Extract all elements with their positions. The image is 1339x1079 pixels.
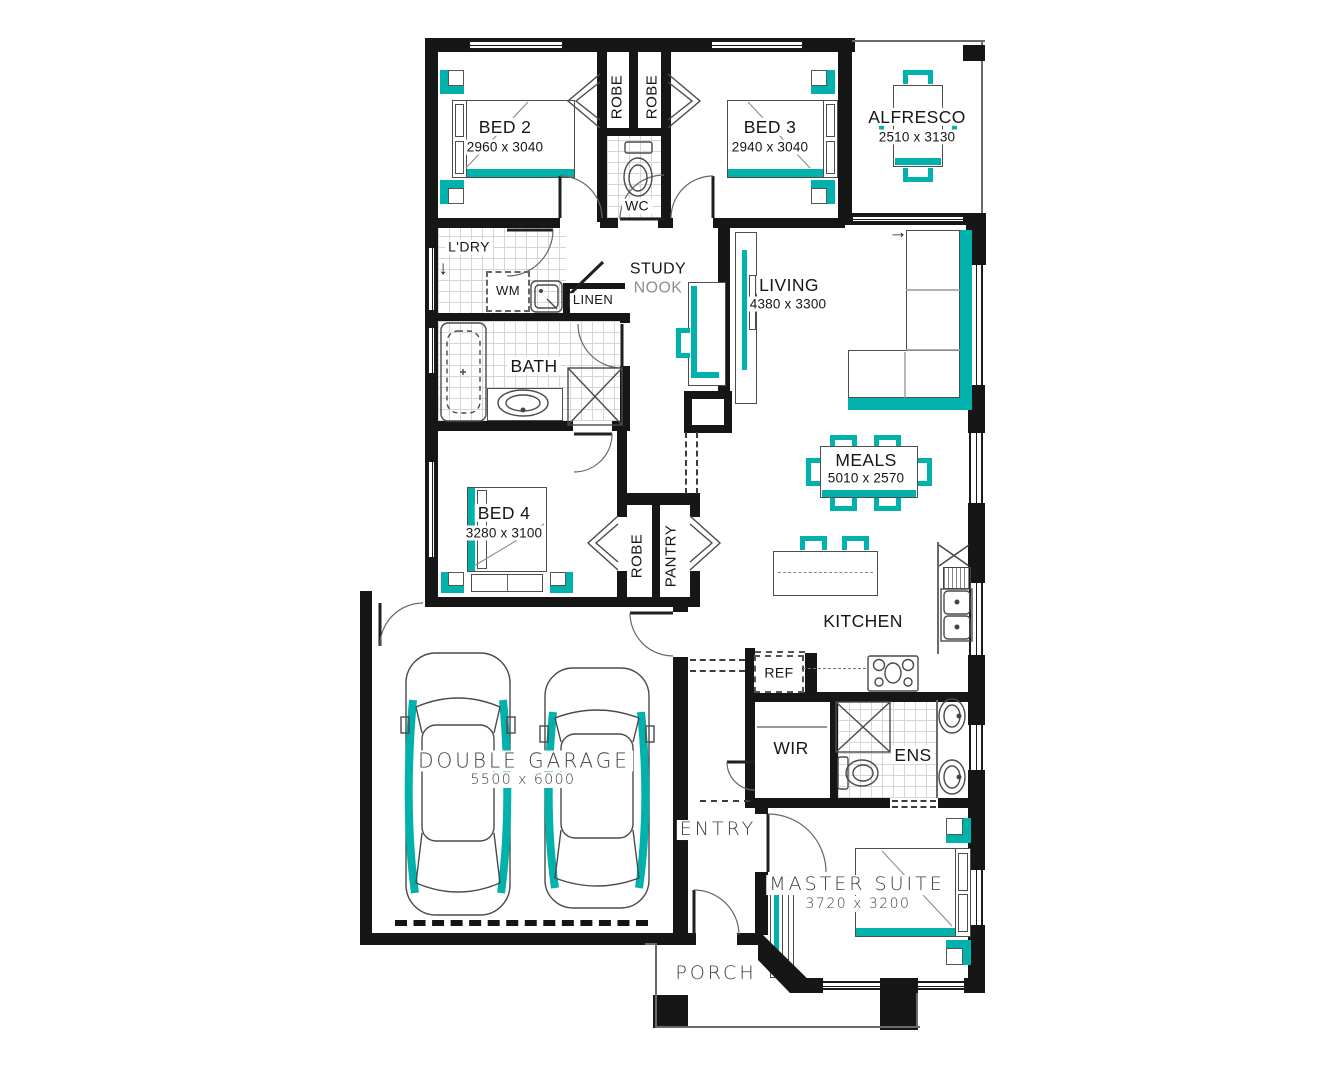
bed3-label: BED 3 (741, 118, 800, 136)
robe-bed2-label: ROBE (609, 73, 626, 122)
ens-toilet (838, 757, 878, 789)
meals-label: MEALS (832, 451, 899, 469)
laundry-label: L'DRY (445, 240, 493, 255)
bed4-dims: 3280 x 3100 (464, 526, 545, 541)
cooktop (868, 656, 918, 691)
wc-toilet (624, 142, 652, 196)
robe-bed4-label: ROBE (629, 532, 646, 581)
door-bed4 (574, 434, 612, 472)
bath-basin (498, 390, 548, 416)
garage-dims: 5500 x 6000 (469, 772, 578, 788)
wc-label: WC (622, 199, 652, 214)
master-dims: 3720 x 3200 (804, 896, 913, 912)
bed2-label: BED 2 (476, 118, 535, 136)
door-bath (578, 324, 622, 368)
master-label: MASTER SUITE (766, 875, 948, 895)
kitchen-sink (941, 589, 972, 641)
door-master (768, 814, 826, 872)
bath-shower (568, 368, 622, 425)
bed4-label: BED 4 (475, 504, 534, 522)
alfresco-label: ALFRESCO (865, 108, 969, 126)
ens-label: ENS (891, 746, 934, 764)
ens-basin-2 (939, 760, 965, 794)
alfresco-dims: 2510 x 3130 (877, 130, 958, 145)
sofa-cushion-lines (905, 290, 960, 398)
door-laundry (507, 230, 553, 276)
ref-label: REF (761, 666, 796, 681)
bath-label: BATH (508, 357, 561, 375)
wir-label: WIR (770, 739, 811, 757)
door-hall-ajar (570, 262, 603, 294)
study-label-line2: NOOK (631, 281, 686, 298)
door-bed3 (671, 176, 713, 218)
linen-label: LINEN (570, 293, 616, 307)
study-label-line1: STUDY (627, 262, 689, 279)
ens-basin-1 (939, 699, 965, 733)
garage-label: DOUBLE GARAGE (415, 751, 633, 772)
door-front-entry (694, 890, 739, 935)
floor-plan: BED 2 2960 x 3040 BED 3 2940 x 3040 ALFR… (0, 0, 1339, 1079)
laundry-door-arrow: ↓ (438, 258, 448, 280)
car-right (540, 668, 654, 908)
entry-diagonal-wall (758, 930, 822, 993)
door-garage-external (380, 603, 423, 646)
bifold-robe-bed3 (668, 74, 700, 128)
bathtub (441, 323, 486, 421)
entry-label: ENTRY (677, 820, 759, 840)
ens-shower (836, 702, 890, 752)
kitchen-corner-diagonals (939, 545, 969, 566)
bifold-pantry (690, 516, 720, 570)
wm-label: WM (493, 284, 523, 298)
kitchen-label: KITCHEN (820, 612, 906, 630)
living-label: LIVING (756, 276, 822, 294)
porch-label: PORCH (672, 964, 759, 984)
bifold-robe-bed2 (568, 74, 600, 128)
door-wir (727, 762, 755, 790)
bed2-dims: 2960 x 3040 (465, 140, 546, 155)
pantry-label: PANTRY (663, 523, 680, 589)
robe-bed3-label: ROBE (644, 73, 661, 122)
laundry-trough (531, 281, 562, 312)
bifold-robe-bed4 (588, 516, 618, 570)
door-garage-internal (630, 613, 673, 656)
bed3-dims: 2940 x 3040 (730, 140, 811, 155)
living-dims: 4380 x 3300 (748, 297, 829, 312)
door-bed2 (560, 176, 602, 218)
living-sliding-arrow: → (889, 222, 908, 244)
meals-dims: 5010 x 2570 (826, 471, 907, 486)
